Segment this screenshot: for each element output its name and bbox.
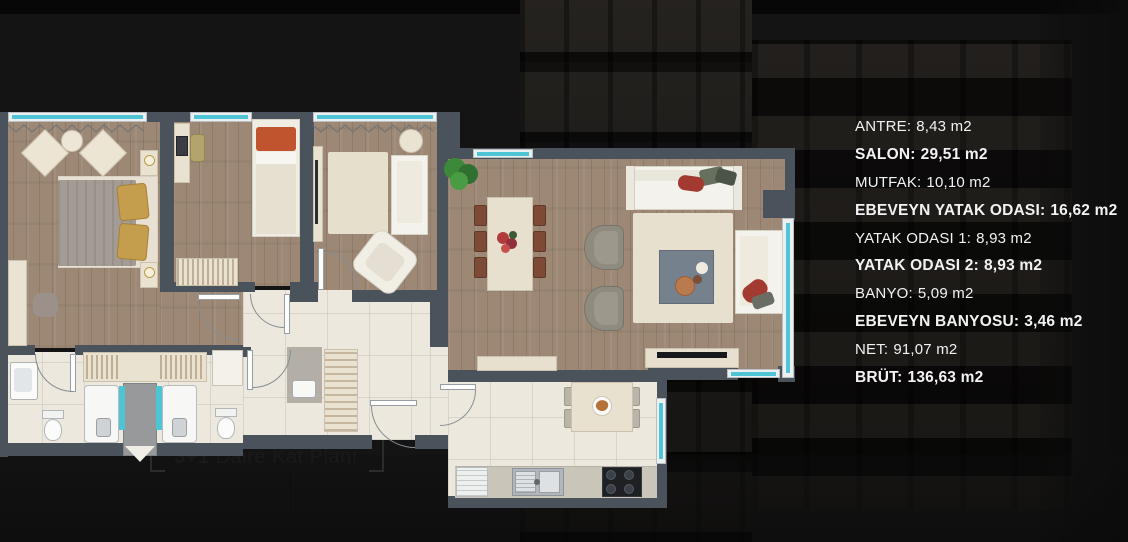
area-label: BRÜT: bbox=[855, 369, 903, 386]
burner-2 bbox=[624, 470, 634, 480]
toilet-right-bowl bbox=[217, 417, 235, 439]
area-label: EBEVEYN YATAK ODASI: bbox=[855, 202, 1045, 219]
area-value: 5,09 m2 bbox=[918, 285, 974, 302]
area-value: 8,43 m2 bbox=[916, 118, 972, 135]
wall-hall-kitchen bbox=[430, 290, 448, 347]
tv-salon bbox=[657, 352, 727, 358]
floorplan-page: 3+1 Daire Kat Planı bbox=[0, 0, 1128, 542]
area-label: EBEVEYN BANYOSU: bbox=[855, 313, 1019, 330]
tray-small bbox=[693, 275, 702, 284]
wardrobe-bedroom1 bbox=[176, 258, 238, 286]
area-row-salon: SALON:29,51 m2 bbox=[855, 141, 1120, 169]
door-arc-entrance bbox=[371, 406, 415, 448]
area-value: 16,62 m2 bbox=[1050, 202, 1117, 219]
master-bed-pillow-2 bbox=[116, 223, 149, 261]
lamp-2 bbox=[144, 267, 155, 278]
area-row-mutfak: MUTFAK:10,10 m2 bbox=[855, 169, 1120, 197]
wall-bath-bottom bbox=[0, 443, 243, 456]
console-table bbox=[477, 356, 557, 371]
hall-wardrobe-rail-left bbox=[86, 355, 120, 379]
area-label: NET: bbox=[855, 341, 888, 358]
window-salon-bottom-glass bbox=[731, 372, 776, 376]
wall-master-bottom-1 bbox=[0, 345, 35, 355]
shaft-triangle bbox=[125, 446, 155, 462]
tray-white bbox=[696, 262, 708, 274]
area-row-ebeveyn-banyo: EBEVEYN BANYOSU:3,46 m2 bbox=[855, 308, 1120, 336]
hall-closet-column bbox=[324, 349, 358, 432]
area-label: SALON: bbox=[855, 146, 916, 163]
burner-4 bbox=[624, 484, 634, 494]
area-label: YATAK ODASI 1: bbox=[855, 230, 971, 247]
master-bed-pillow-1 bbox=[116, 183, 150, 222]
pouf bbox=[61, 130, 83, 152]
wall-left bbox=[0, 112, 8, 457]
wall-door-pillar bbox=[290, 282, 318, 302]
kitchen-sink-basin-1 bbox=[515, 471, 536, 493]
hall-wardrobe-rail-right bbox=[160, 355, 204, 379]
armchair-salon-2-cushion bbox=[594, 292, 618, 325]
dresser bbox=[8, 260, 27, 346]
laptop bbox=[176, 136, 188, 156]
lamp-1 bbox=[144, 155, 155, 166]
window-bedroom2-glass bbox=[317, 115, 433, 119]
area-value: 136,63 m2 bbox=[908, 369, 984, 386]
area-label: YATAK ODASI 2: bbox=[855, 257, 979, 274]
area-row-ebeveyn-yatak: EBEVEYN YATAK ODASI:16,62 m2 bbox=[855, 197, 1120, 225]
window-salon-right-glass bbox=[786, 223, 790, 373]
area-value: 8,93 m2 bbox=[984, 257, 1042, 274]
flowers-leaves bbox=[509, 231, 517, 239]
single-bed-pillow bbox=[256, 127, 296, 151]
wc-alcove-sink bbox=[292, 380, 316, 398]
wall-master-bedroom1 bbox=[160, 112, 174, 292]
flowers-3 bbox=[501, 244, 510, 253]
plant-leaf-3 bbox=[450, 172, 468, 190]
single-bed-duvet bbox=[256, 164, 296, 234]
dining-chair-l2 bbox=[474, 231, 487, 252]
wall-hall-bottom-1 bbox=[243, 435, 372, 449]
area-label: BANYO: bbox=[855, 285, 913, 302]
kitchen-faucet bbox=[534, 479, 540, 485]
bath-vanity-right bbox=[212, 350, 243, 386]
wall-salon-kitchen bbox=[448, 370, 657, 382]
area-row-net: NET:91,07 m2 bbox=[855, 336, 1120, 364]
toilet-right-tank bbox=[215, 408, 237, 417]
tray-copper bbox=[675, 276, 695, 296]
kitchen-sink-basin-2 bbox=[539, 471, 560, 493]
wall-hall-bottom-2 bbox=[415, 435, 448, 449]
tv-unit bbox=[645, 348, 739, 368]
shower-fixture-2 bbox=[172, 418, 187, 437]
area-row-antre: ANTRE:8,43 m2 bbox=[855, 113, 1120, 141]
wall-salon-column bbox=[763, 190, 795, 218]
area-label: MUTFAK: bbox=[855, 174, 921, 191]
area-value: 10,10 m2 bbox=[926, 174, 990, 191]
dishwasher bbox=[456, 467, 488, 497]
bath-sink-left-basin bbox=[14, 368, 32, 392]
area-row-brut: BRÜT:136,63 m2 bbox=[855, 364, 1120, 392]
dining-chair-r1 bbox=[533, 205, 546, 226]
armchair-salon-1-cushion bbox=[594, 231, 618, 264]
area-row-yatak1: YATAK ODASI 1:8,93 m2 bbox=[855, 225, 1120, 253]
dining-chair-l3 bbox=[474, 257, 487, 278]
daybed-cushion bbox=[397, 161, 422, 223]
area-value: 8,93 m2 bbox=[976, 230, 1032, 247]
area-label: ANTRE: bbox=[855, 118, 911, 135]
wall-bedroom1-bedroom2 bbox=[300, 112, 314, 292]
dining-chair-l1 bbox=[474, 205, 487, 226]
area-row-banyo: BANYO:5,09 m2 bbox=[855, 280, 1120, 308]
tv-bedroom2 bbox=[315, 160, 318, 224]
wall-bedroom2-right bbox=[437, 112, 448, 302]
side-table-round bbox=[399, 129, 423, 153]
sofa-armrest-left bbox=[626, 166, 635, 210]
single-bed-fold bbox=[256, 152, 296, 164]
toilet-left-tank bbox=[42, 410, 64, 419]
toilet-left-bowl bbox=[44, 419, 62, 441]
area-value: 3,46 m2 bbox=[1024, 313, 1082, 330]
area-value: 29,51 m2 bbox=[921, 146, 988, 163]
window-bedroom1-glass bbox=[194, 115, 248, 119]
shower-glass-1 bbox=[119, 386, 125, 430]
window-master-glass bbox=[12, 115, 143, 119]
burner-3 bbox=[606, 484, 616, 494]
shower-fixture-1 bbox=[96, 418, 111, 437]
burner-1 bbox=[606, 470, 616, 480]
area-row-yatak2: YATAK ODASI 2:8,93 m2 bbox=[855, 252, 1120, 280]
dining-chair-r3 bbox=[533, 257, 546, 278]
window-kitchen-glass bbox=[659, 403, 663, 459]
area-list: ANTRE:8,43 m2 SALON:29,51 m2 MUTFAK:10,1… bbox=[855, 113, 1120, 392]
desk-chair bbox=[190, 134, 205, 162]
door-leaf-bedroom1 bbox=[284, 294, 290, 334]
area-value: 91,07 m2 bbox=[893, 341, 957, 358]
stool bbox=[33, 293, 58, 317]
rug-bedroom2 bbox=[328, 152, 388, 234]
dining-chair-r2 bbox=[533, 231, 546, 252]
window-dining-glass bbox=[477, 152, 529, 156]
shower-glass-2 bbox=[156, 386, 162, 430]
